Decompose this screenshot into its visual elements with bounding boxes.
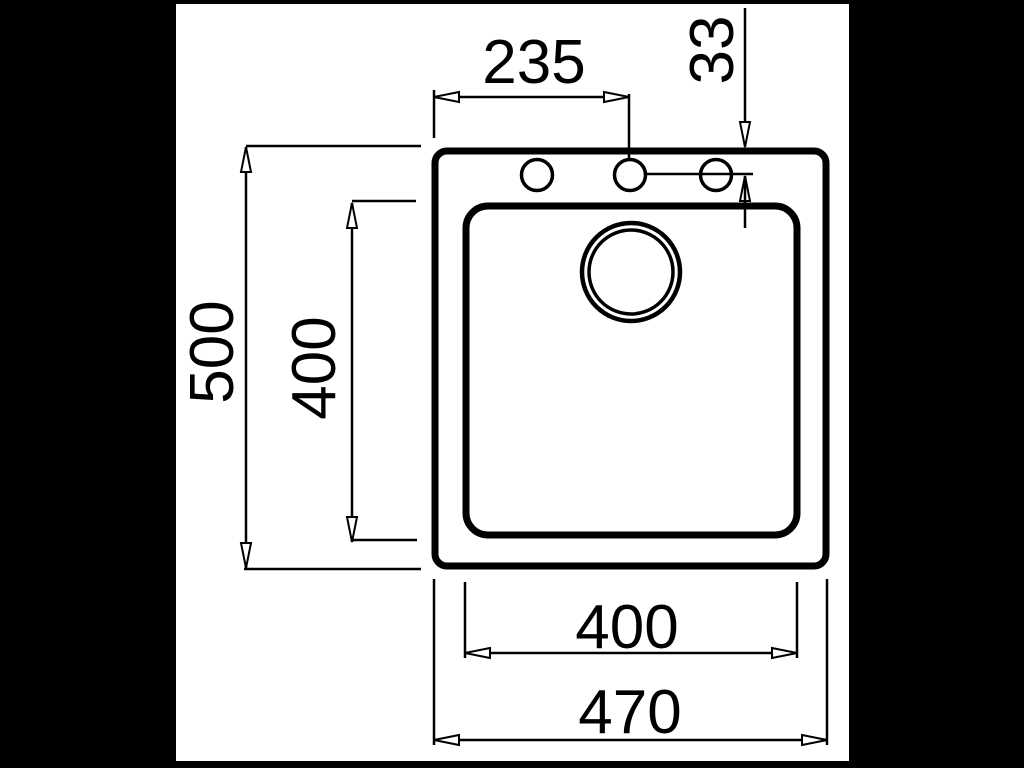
dimension-label-400-horizontal: 400 — [575, 593, 678, 662]
dimension-label-235: 235 — [482, 28, 585, 97]
dimension-label-400-vertical: 400 — [280, 316, 349, 419]
dimension-label-470: 470 — [578, 678, 681, 747]
sink-dimension-drawing: 235 33 500 400 — [0, 0, 1024, 768]
technical-drawing-stage: 235 33 500 400 — [0, 0, 1024, 768]
dimension-label-33: 33 — [678, 16, 747, 85]
drawing-paper — [176, 4, 849, 761]
dimension-label-500: 500 — [178, 300, 247, 403]
